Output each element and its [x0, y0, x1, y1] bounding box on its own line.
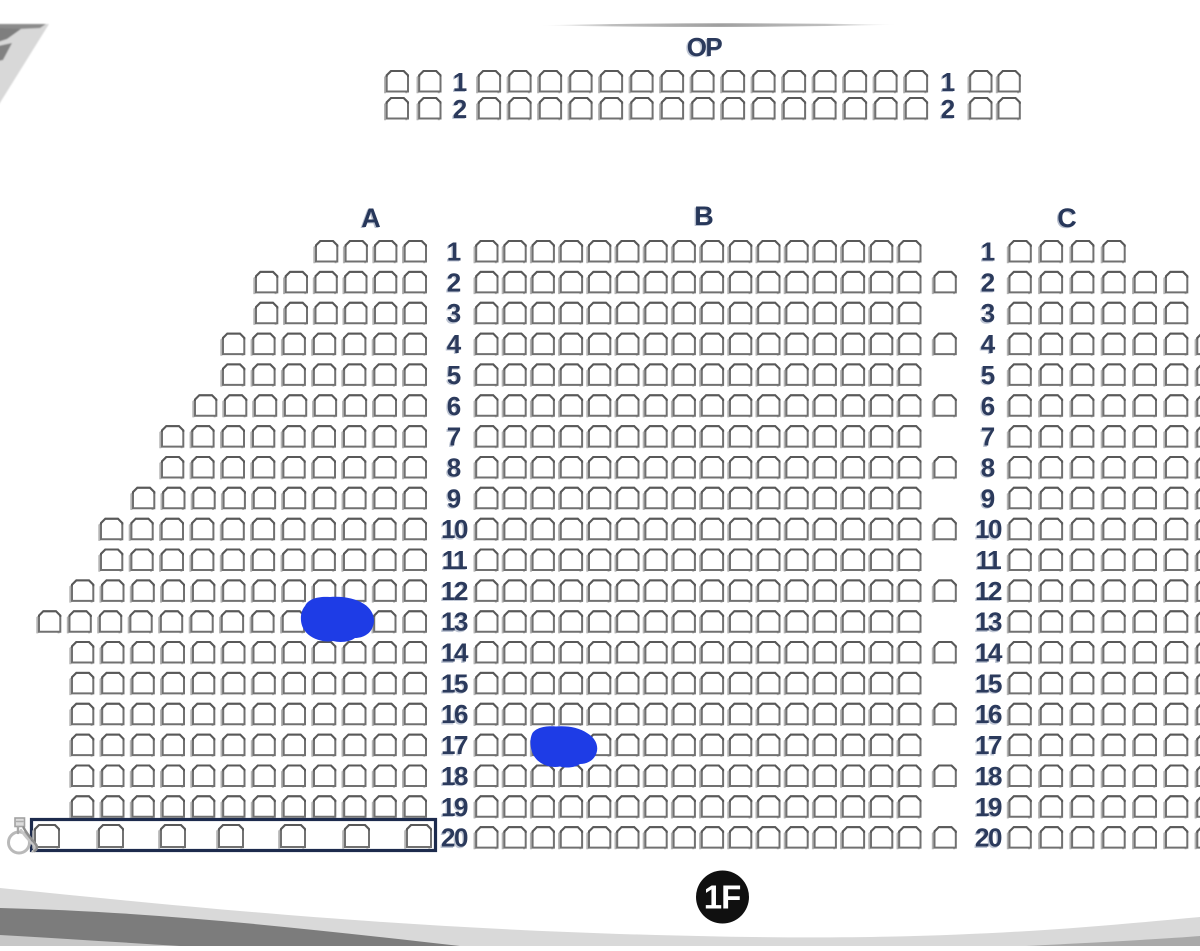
svg-text:11: 11 — [976, 545, 1002, 575]
svg-text:7: 7 — [981, 422, 995, 452]
svg-text:18: 18 — [975, 761, 1002, 791]
svg-text:A: A — [361, 203, 381, 233]
svg-text:15: 15 — [441, 668, 468, 698]
svg-text:9: 9 — [447, 483, 461, 513]
svg-text:20: 20 — [975, 823, 1002, 853]
svg-text:6: 6 — [447, 391, 461, 421]
svg-text:12: 12 — [441, 576, 468, 606]
svg-text:8: 8 — [447, 453, 461, 483]
svg-text:7: 7 — [447, 422, 461, 452]
svg-text:16: 16 — [975, 699, 1002, 729]
svg-text:11: 11 — [442, 545, 468, 575]
svg-text:4: 4 — [981, 329, 996, 359]
svg-text:19: 19 — [441, 792, 468, 822]
svg-text:13: 13 — [441, 607, 468, 637]
svg-text:17: 17 — [441, 730, 468, 760]
svg-text:3: 3 — [447, 298, 461, 328]
svg-text:10: 10 — [441, 514, 468, 544]
svg-text:18: 18 — [441, 761, 468, 791]
svg-text:2: 2 — [941, 94, 955, 124]
svg-text:13: 13 — [975, 607, 1002, 637]
svg-text:14: 14 — [441, 638, 469, 668]
svg-text:12: 12 — [975, 576, 1002, 606]
svg-text:1: 1 — [981, 237, 995, 267]
svg-text:1F: 1F — [704, 879, 741, 916]
svg-text:C: C — [1057, 203, 1077, 233]
svg-text:3: 3 — [981, 298, 995, 328]
svg-text:10: 10 — [975, 514, 1002, 544]
svg-text:B: B — [694, 201, 714, 231]
svg-text:2: 2 — [453, 94, 467, 124]
svg-text:6: 6 — [981, 391, 995, 421]
svg-text:OP: OP — [687, 32, 723, 62]
svg-text:15: 15 — [975, 668, 1002, 698]
svg-text:2: 2 — [447, 267, 461, 297]
svg-text:14: 14 — [975, 638, 1003, 668]
svg-text:20: 20 — [441, 823, 468, 853]
svg-text:1: 1 — [941, 67, 955, 97]
svg-text:9: 9 — [981, 483, 995, 513]
svg-text:5: 5 — [981, 360, 995, 390]
svg-text:4: 4 — [447, 329, 462, 359]
svg-text:8: 8 — [981, 453, 995, 483]
svg-text:5: 5 — [447, 360, 461, 390]
svg-text:17: 17 — [975, 730, 1002, 760]
svg-text:1: 1 — [447, 237, 461, 267]
svg-text:19: 19 — [975, 792, 1002, 822]
svg-text:16: 16 — [441, 699, 468, 729]
svg-text:2: 2 — [981, 267, 995, 297]
svg-text:1: 1 — [453, 67, 467, 97]
